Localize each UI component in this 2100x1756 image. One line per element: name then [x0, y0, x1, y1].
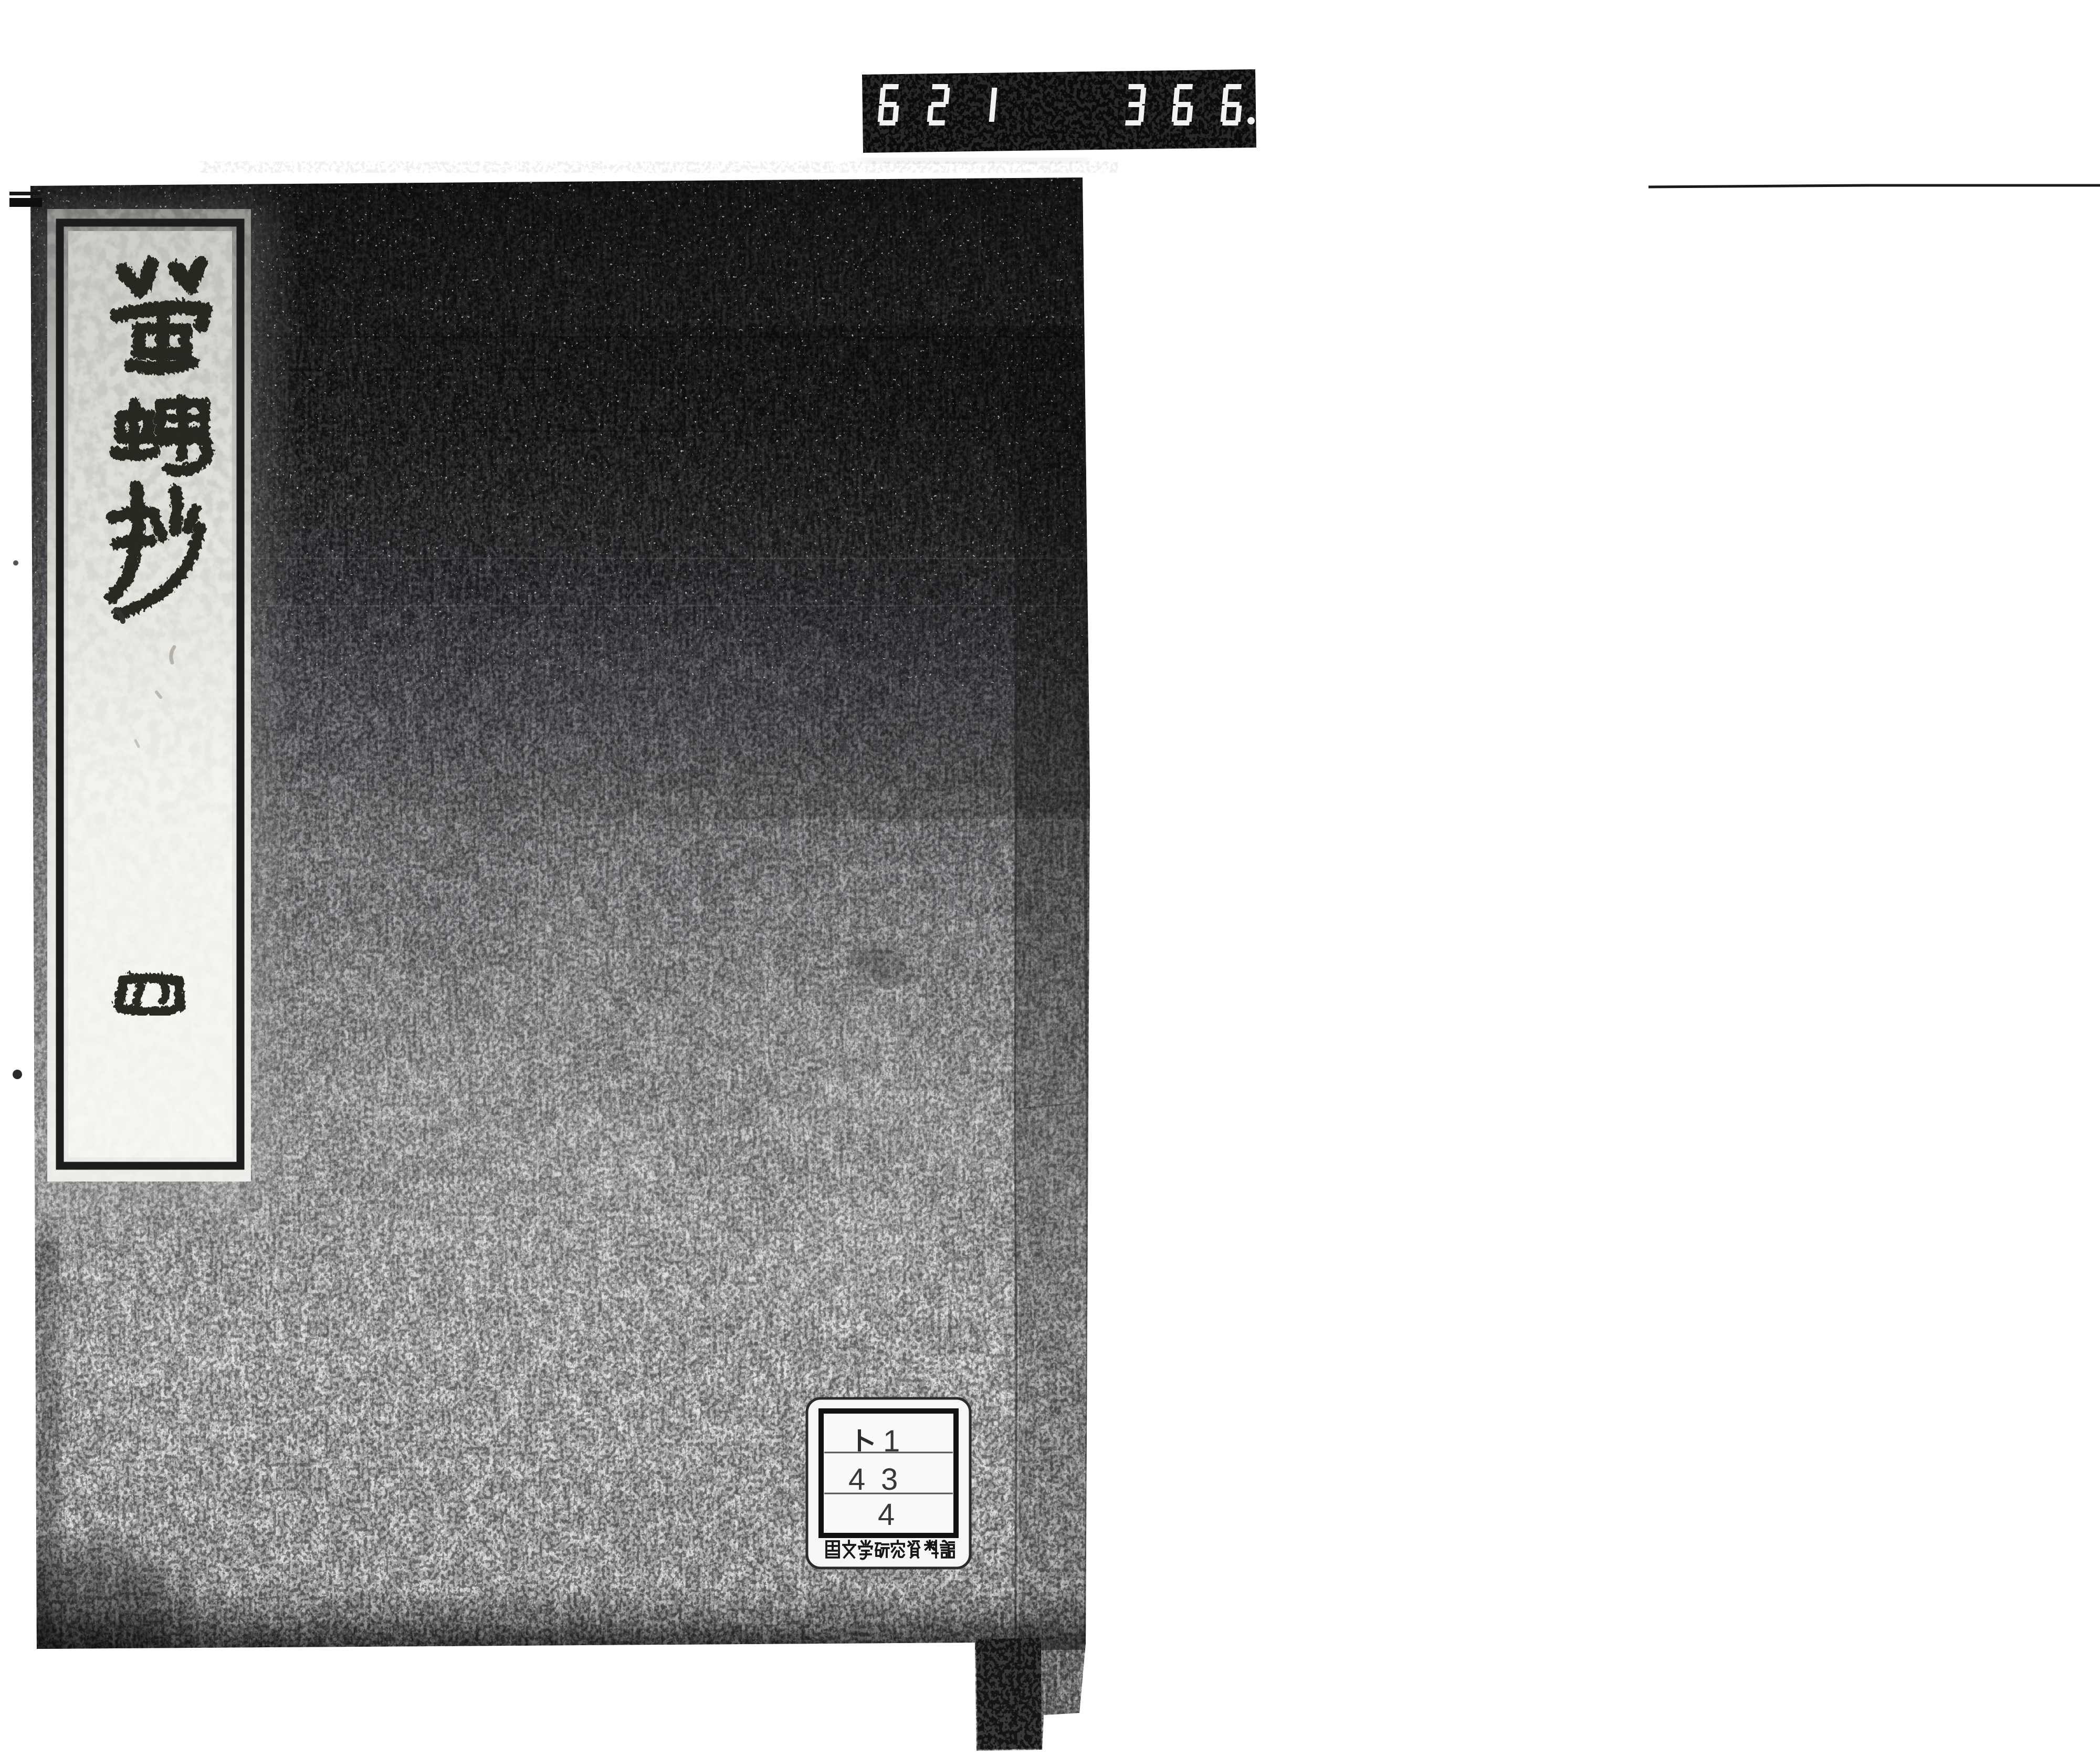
svg-text:4: 4: [848, 1462, 865, 1497]
svg-text:1: 1: [883, 1424, 900, 1458]
svg-text:4: 4: [878, 1498, 895, 1532]
svg-text:3: 3: [881, 1462, 898, 1497]
